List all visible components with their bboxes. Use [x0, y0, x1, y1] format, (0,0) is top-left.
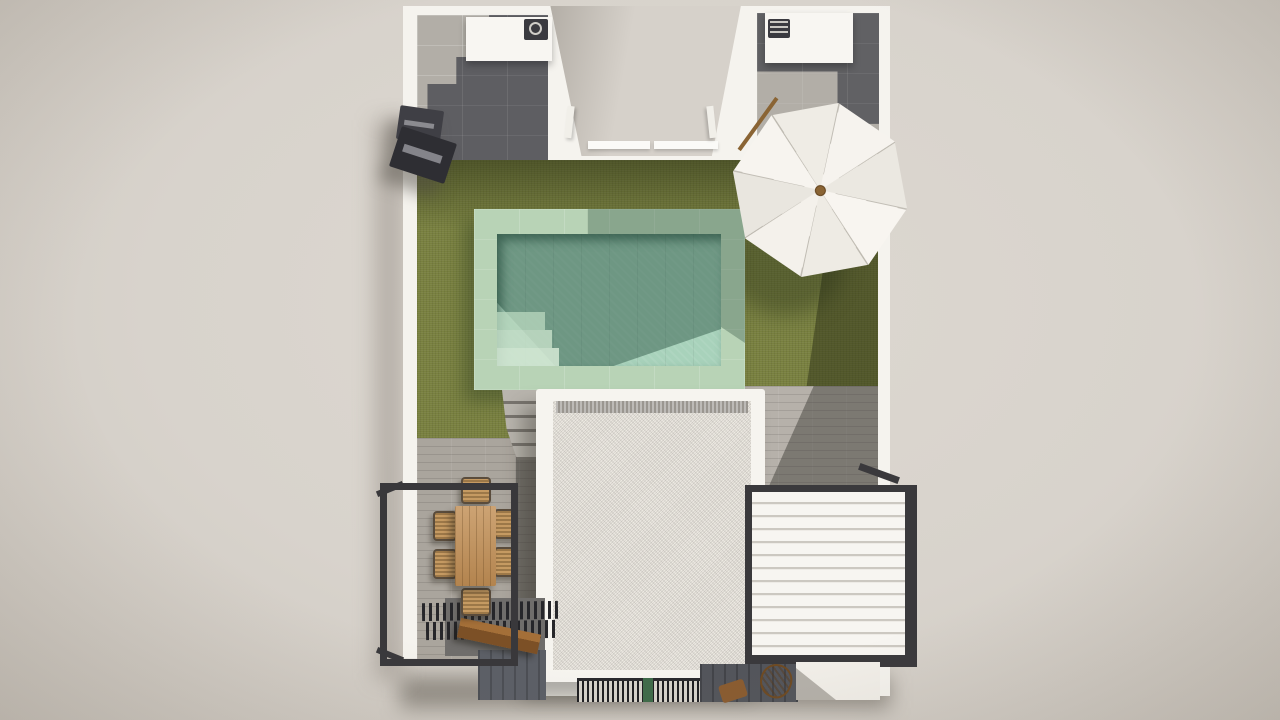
- wall-mounted-unit: [390, 106, 454, 204]
- door-threshold-right: [654, 141, 718, 149]
- door-threshold-left: [588, 141, 650, 149]
- wall-fin-left: [564, 106, 574, 139]
- grate-plant: [643, 678, 653, 702]
- pool-step-2: [497, 330, 552, 348]
- left-balcony-railing: [380, 483, 518, 666]
- ac-unit-right: [768, 19, 790, 38]
- unit-lower: [389, 126, 457, 184]
- umbrella-hub: [814, 184, 827, 197]
- pool-step-1: [497, 348, 559, 366]
- right-balcony-railing: [745, 485, 917, 667]
- archviz-render: [0, 0, 1280, 720]
- unit-lower-stripe: [402, 144, 443, 164]
- gravel-roof-dark-band: [556, 401, 748, 413]
- central-courtyard: [538, 6, 745, 156]
- gravel-roof-fill: [553, 401, 751, 670]
- pool-step-3: [497, 312, 545, 330]
